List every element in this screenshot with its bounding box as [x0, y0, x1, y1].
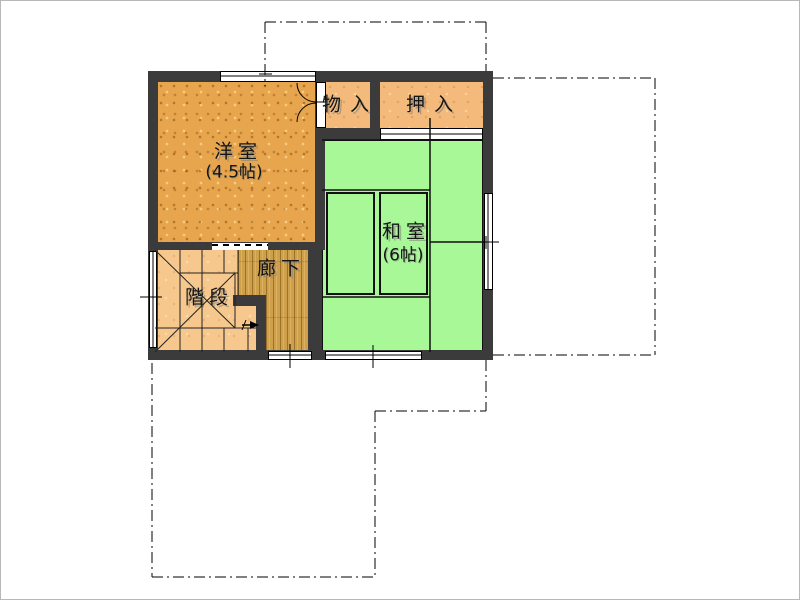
label-western-room: 洋室 — [214, 143, 262, 162]
window-north — [220, 71, 316, 82]
opening-western-to-hall — [212, 243, 268, 250]
door-closet-sliding — [380, 128, 483, 140]
window-south-hallway — [268, 351, 312, 360]
wall-hallway-east — [308, 250, 322, 352]
label-japanese-room-size: (6帖) — [382, 248, 423, 265]
wall-stair-vertical — [256, 295, 266, 352]
label-stairs: 階段 — [185, 289, 233, 308]
window-east-tatami — [484, 193, 493, 290]
label-japanese-room: 和室 — [382, 223, 430, 242]
window-south-tatami — [325, 351, 422, 360]
label-closet: 押入 — [406, 96, 462, 115]
wall-under-storage — [315, 128, 377, 140]
room-hallway-lower — [266, 296, 308, 352]
floor-plan-canvas: 洋室 (4.5帖) 物入 押入 和室 (6帖) 廊下 階段 — [0, 0, 800, 600]
label-hallway: 廊下 — [257, 260, 305, 279]
label-storage: 物入 — [322, 96, 378, 115]
window-west-stairs — [149, 251, 157, 348]
label-western-room-size: (4.5帖) — [205, 165, 262, 182]
wall-north — [148, 71, 493, 82]
